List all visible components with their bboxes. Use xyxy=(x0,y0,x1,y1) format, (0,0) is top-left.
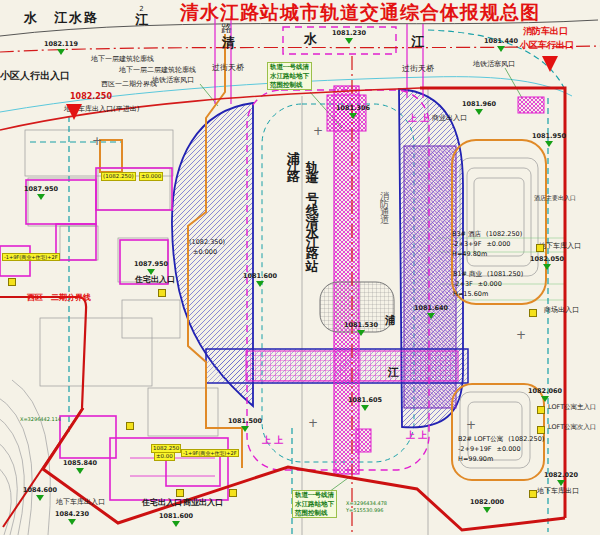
elevation-triangle-icon xyxy=(68,519,76,525)
elevation-triangle-icon xyxy=(256,281,264,287)
elevation-triangle-icon xyxy=(427,313,435,319)
label-piston-vent-left: 地铁活塞风口 xyxy=(152,77,194,84)
elevation-triangle-icon xyxy=(172,521,180,527)
elevation-marker: 1082.050 xyxy=(530,255,564,270)
elevation-marker: 1082.119 xyxy=(44,40,78,55)
elevation-triangle-icon xyxy=(361,405,369,411)
label-commercial-entrance-top: 商业出入口 xyxy=(432,115,467,122)
label-west-zero: ±0.000 xyxy=(193,249,217,256)
label-loft-main-entrance: LOFT公寓主入口 xyxy=(548,404,597,411)
entrance-dot xyxy=(537,406,545,414)
building-tag-zero-2: ±0.00 xyxy=(154,452,175,461)
elevation-marker: 1081.306 xyxy=(336,104,370,119)
survey-cross-icon: + xyxy=(516,328,526,342)
label-residential-ped-entrance: 小区人行出入口 xyxy=(0,71,70,82)
elevation-marker: 1081.500 xyxy=(228,417,262,432)
elevation-triangle-icon xyxy=(36,495,44,501)
road-label-pujiang: 浦江路 xyxy=(286,140,300,170)
up-escalator-mark-2: 上 上 xyxy=(262,436,283,445)
elevation-marker: 1081.600 xyxy=(243,272,277,287)
survey-cross-icon: + xyxy=(308,416,318,430)
building-label-b3: B3# 酒店(1082.250) -2+3+9F±0.000 H=49.80m xyxy=(452,230,527,259)
road-char-qing: 清 xyxy=(222,36,235,50)
drawing-title: 清水江路站城市轨道交通综合体报规总图 xyxy=(180,3,540,23)
label-phase-boundary-2: 西区一二期分界线 xyxy=(27,294,91,302)
elevation-triangle-icon xyxy=(37,194,45,200)
up-escalator-mark-1: 上 上 xyxy=(406,431,427,440)
elevation-triangle-icon xyxy=(349,113,357,119)
label-footbridge-right: 过街天桥 xyxy=(402,65,434,73)
coordinate-y: Y=515530.996 xyxy=(346,508,383,513)
survey-cross-icon: + xyxy=(313,124,323,138)
road-char-pu-2: 浦 xyxy=(385,315,396,327)
station-name-vertical: 轨道一号线清水江路站 xyxy=(305,149,319,259)
elevation-marker: 1081.960 xyxy=(462,100,496,115)
label-footbridge-left: 过街天桥 xyxy=(212,64,244,72)
building-tag-mixed-use: -1+9F(商业+住宅)+2F xyxy=(181,449,239,457)
entrance-dot xyxy=(536,244,544,252)
elevation-triangle-icon xyxy=(357,330,365,336)
building-label-b1: B1# 商业(1081.250) -2+3F±0.000 H=15.60m xyxy=(453,270,528,299)
up-escalator-mark-3: 上 上 xyxy=(408,114,429,123)
road-label-top-left: 水 江水路 xyxy=(24,11,99,25)
red-arrow-icon xyxy=(542,56,558,72)
entrance-dot xyxy=(126,422,134,430)
coordinate-x-2: X=3296442.114 xyxy=(20,417,61,422)
elevation-triangle-icon xyxy=(483,507,491,513)
elevation-marker: 1087.950 xyxy=(24,185,58,200)
elevation-triangle-icon xyxy=(557,480,565,486)
label-garage-entrance-right: 地下车库入口 xyxy=(539,243,581,250)
elevation-triangle-icon xyxy=(545,141,553,147)
elevation-marker: 1081.605 xyxy=(348,396,382,411)
entrance-dot xyxy=(529,490,537,498)
label-residential-vehicle-exit: 小区车行出口 xyxy=(520,41,574,50)
elevation-marker: 1087.950 xyxy=(134,260,168,275)
building-tag-level: (1082.250) xyxy=(101,172,136,181)
fire-lane-label: 消防通道 xyxy=(379,184,388,216)
label-underground-l1l2-outline: 地下一层二层建筑轮廓线 xyxy=(119,67,196,74)
elevation-marker: 1082.250 xyxy=(70,92,112,101)
entrance-dot xyxy=(537,426,545,434)
road-char-jiang-2: 江 xyxy=(388,367,399,379)
rail-control-line-label-bottom: 轨道一号线清 水江路站地下 范围控制线 xyxy=(292,490,337,518)
entrance-dot xyxy=(229,489,237,497)
elevation-triangle-icon xyxy=(76,468,84,474)
elevation-triangle-icon xyxy=(543,264,551,270)
elevation-marker: 1081.530 xyxy=(344,321,378,336)
elevation-triangle-icon xyxy=(57,49,65,55)
road-char-jiang: 江 xyxy=(411,35,424,49)
elevation-marker: 1082.020 xyxy=(544,471,578,486)
elevation-marker: 1084.230 xyxy=(55,510,89,525)
elevation-marker: 1081.440 xyxy=(484,37,518,52)
elevation-triangle-icon xyxy=(345,38,353,44)
elevation-marker: 1081.640 xyxy=(414,304,448,319)
elevation-marker: 1082.000 xyxy=(470,498,504,513)
label-residential-entrance-bottom: 住宅出入口 xyxy=(142,499,182,507)
elevation-marker: 1082.060 xyxy=(528,387,562,402)
label-loft-secondary-entrance: LOFT公寓次入口 xyxy=(548,424,597,431)
road-char-lu: 路 xyxy=(221,23,232,35)
road-char-shui: 水 xyxy=(304,32,317,46)
red-arrow-icon xyxy=(66,104,82,120)
label-west-level: (1082.350) xyxy=(189,239,225,246)
elevation-triangle-icon xyxy=(475,109,483,115)
building-tag-zero: ±0.000 xyxy=(139,172,163,181)
site-plan-canvas: 清水江路站城市轨道交通综合体报规总图 水 江水路 路 清 水 江 2 江 浦江路… xyxy=(0,0,600,535)
survey-cross-icon: + xyxy=(92,134,102,148)
entrance-dot xyxy=(8,278,16,286)
label-mall-entrance: 商场出入口 xyxy=(544,307,579,314)
elevation-marker: 1081.230 xyxy=(332,29,366,44)
building-tag-mixed-use-2: -1+9F(商业+住宅)+2F xyxy=(2,253,60,261)
elevation-triangle-icon xyxy=(541,396,549,402)
elevation-triangle-icon xyxy=(147,269,155,275)
elevation-marker: 1085.840 xyxy=(63,459,97,474)
label-garage-exit: 地下车库出口 xyxy=(537,488,579,495)
label-phase-boundary: 西区一二期分界线 xyxy=(101,81,157,88)
label-garage-entrance-bl: 地下车库出入口 xyxy=(56,499,105,506)
label-hotel-main-entrance: 酒店主要出入口 xyxy=(534,195,576,201)
label-commercial-entrance-bottom: 商业出入口 xyxy=(183,499,223,507)
coordinate-x: X=3296434.478 xyxy=(346,501,387,506)
bridge-number-marker: 2 江 xyxy=(135,6,148,26)
label-piston-vent-right: 地铁活塞风口 xyxy=(473,61,515,68)
entrance-dot xyxy=(176,489,184,497)
label-underground-l1-outline: 地下一层建筑轮廓线 xyxy=(91,56,154,63)
entrance-dot xyxy=(529,309,537,317)
entrance-dot xyxy=(158,289,166,297)
elevation-triangle-icon xyxy=(241,426,249,432)
label-fire-truck-exit: 消防车出口 xyxy=(523,27,568,36)
rail-control-line-label-top: 轨道一号线清 水江路站地下 范围控制线 xyxy=(267,62,312,90)
survey-cross-icon: + xyxy=(466,418,476,432)
elevation-marker: 1081.600 xyxy=(159,512,193,527)
elevation-marker: 1084.600 xyxy=(23,486,57,501)
elevation-marker: 1081.950 xyxy=(532,132,566,147)
building-label-b2: B2# LOFT公寓(1082.250) -2+9+19F±0.000 H=99… xyxy=(458,435,549,464)
elevation-triangle-icon xyxy=(497,46,505,52)
label-residential-entrance-mid: 住宅出入口 xyxy=(135,276,175,284)
